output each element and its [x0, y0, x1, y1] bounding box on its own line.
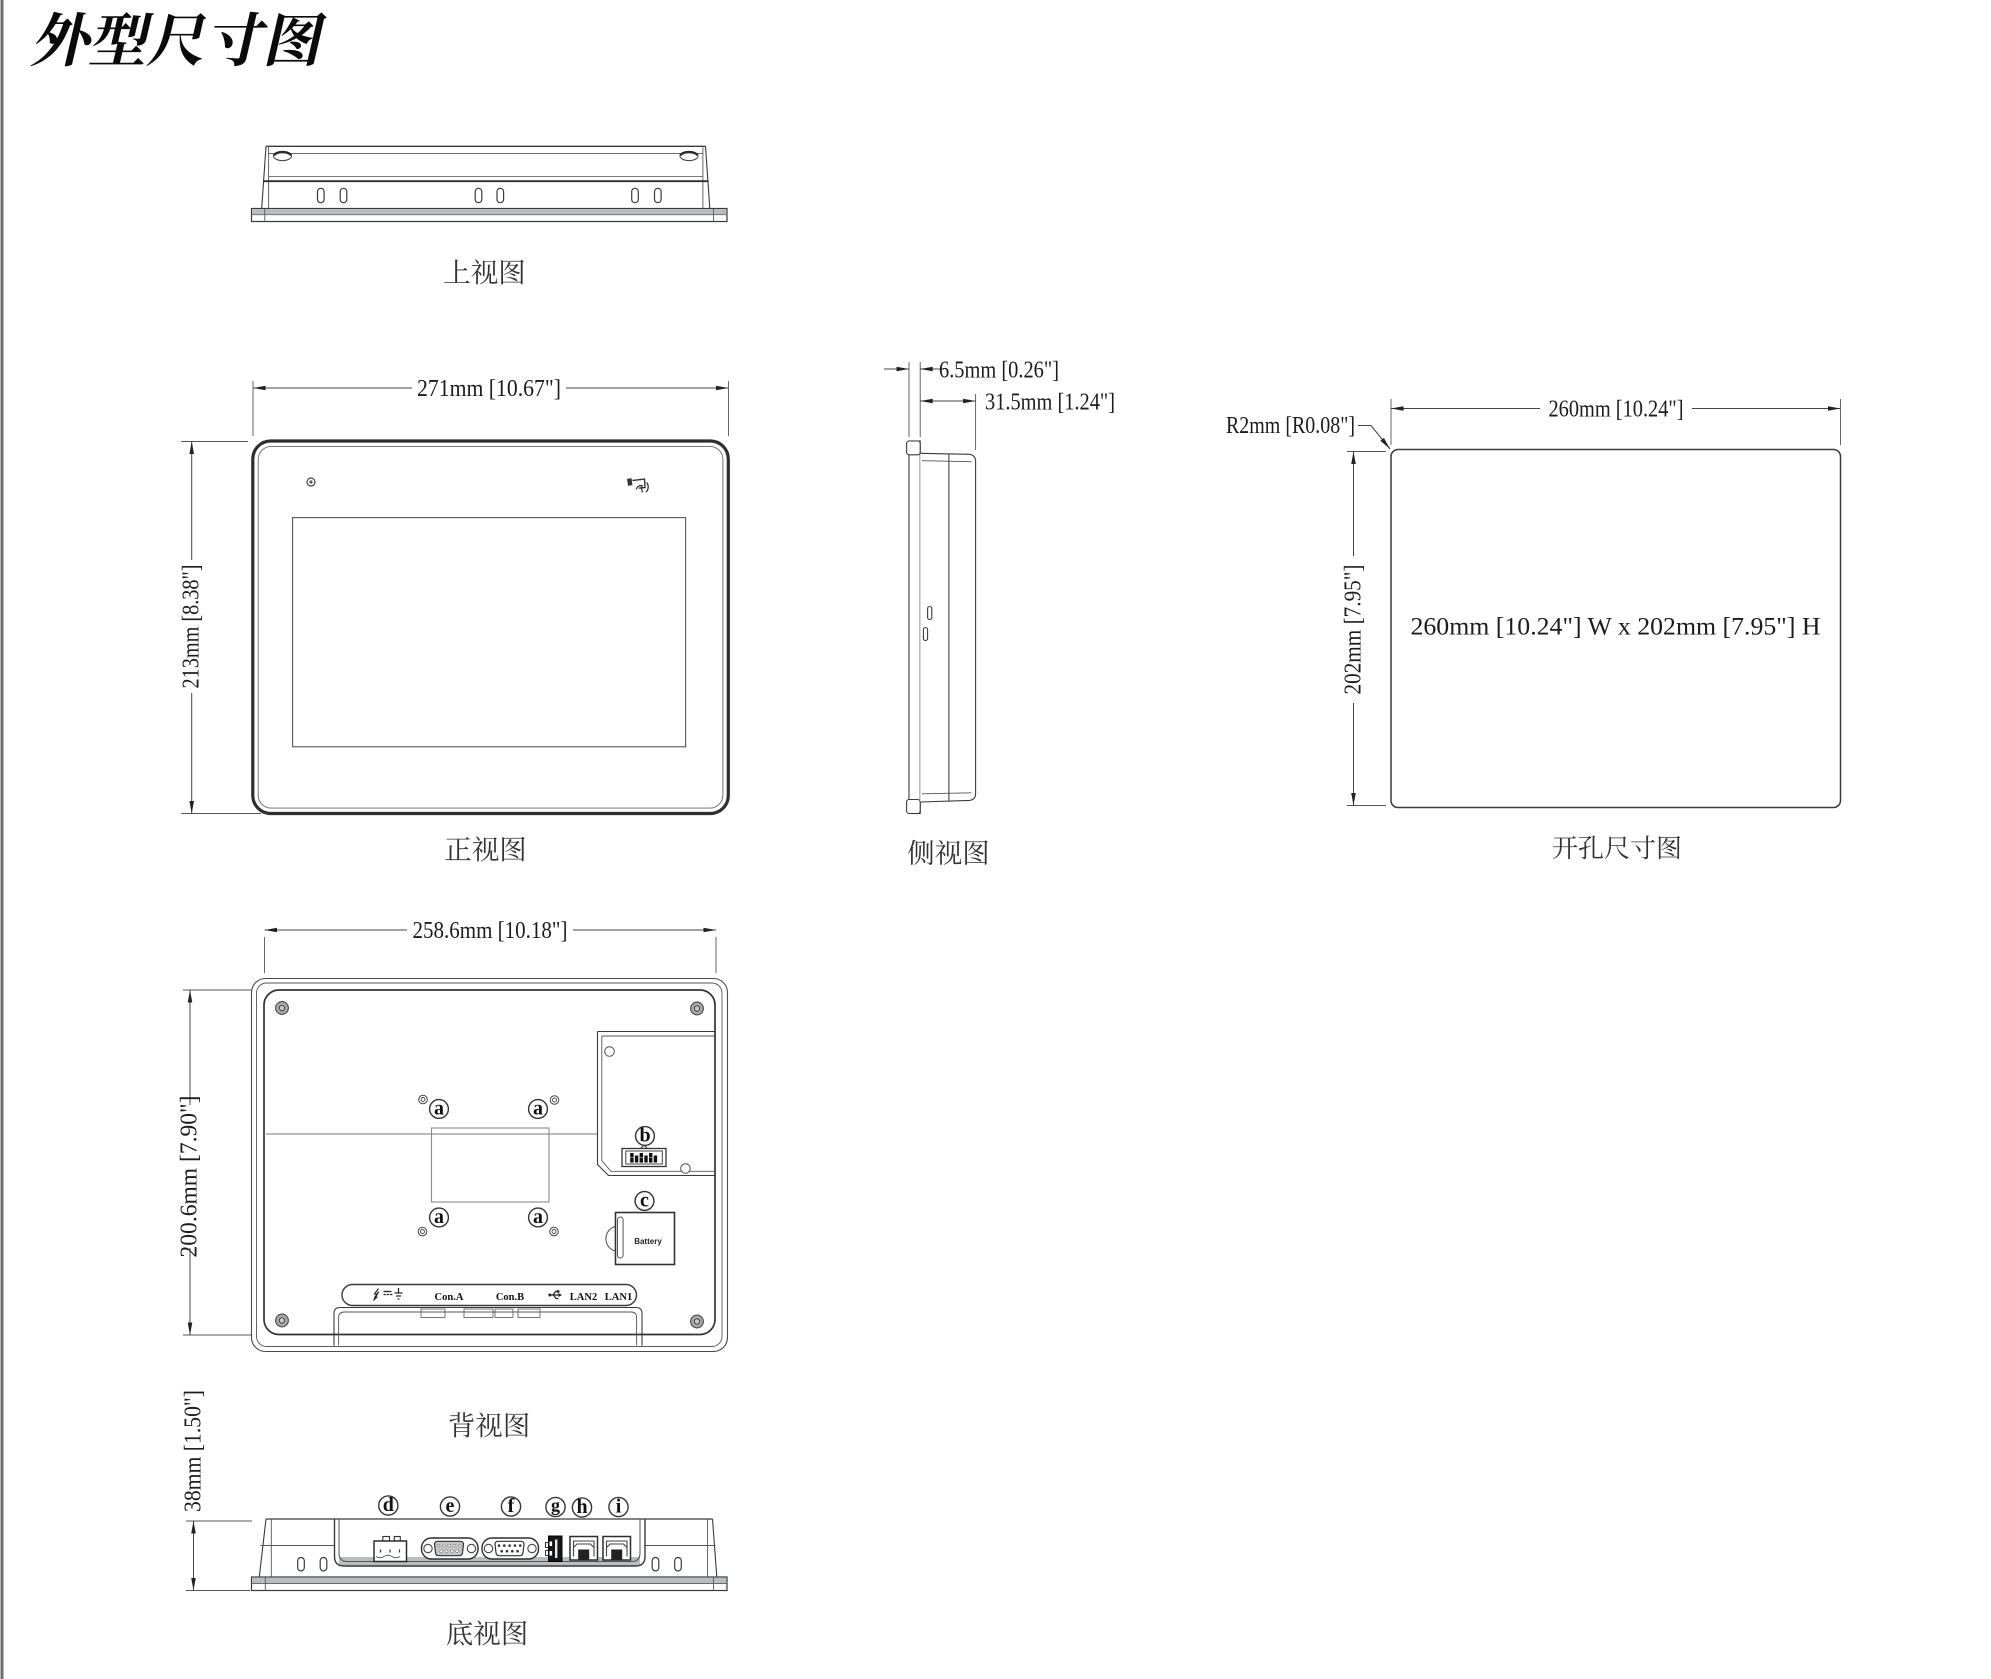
svg-text:260mm [10.24"] W x 202mm [7.95: 260mm [10.24"] W x 202mm [7.95"] H	[1411, 612, 1821, 641]
svg-text:f: f	[508, 1495, 515, 1517]
svg-text:31.5mm [1.24"]: 31.5mm [1.24"]	[985, 390, 1115, 416]
svg-text:38mm [1.50"]: 38mm [1.50"]	[181, 1390, 207, 1512]
svg-text:6.5mm [0.26"]: 6.5mm [0.26"]	[939, 358, 1059, 384]
svg-text:202mm [7.95"]: 202mm [7.95"]	[1341, 565, 1367, 695]
svg-text:260mm [10.24"]: 260mm [10.24"]	[1549, 397, 1684, 423]
svg-text:a: a	[533, 1206, 543, 1228]
svg-text:LAN2: LAN2	[570, 1292, 597, 1303]
svg-text:h: h	[576, 1496, 587, 1518]
svg-text:R2mm [R0.08"]: R2mm [R0.08"]	[1226, 413, 1355, 439]
svg-text:d: d	[383, 1494, 394, 1516]
svg-text:Con.B: Con.B	[496, 1292, 524, 1303]
svg-text:Battery: Battery	[634, 1237, 662, 1246]
svg-text:258.6mm [10.18"]: 258.6mm [10.18"]	[413, 918, 568, 944]
svg-text:LAN1: LAN1	[605, 1292, 632, 1303]
svg-text:c: c	[640, 1190, 649, 1212]
svg-text:Con.A: Con.A	[435, 1292, 464, 1303]
svg-text:b: b	[639, 1125, 650, 1147]
svg-text:a: a	[434, 1098, 444, 1120]
svg-text:e: e	[446, 1495, 455, 1517]
svg-text:i: i	[616, 1496, 622, 1518]
svg-text:271mm [10.67"]: 271mm [10.67"]	[417, 376, 561, 402]
svg-text:213mm [8.38"]: 213mm [8.38"]	[179, 565, 205, 689]
svg-text:200.6mm [7.90"]: 200.6mm [7.90"]	[177, 1096, 203, 1258]
svg-text:a: a	[533, 1098, 543, 1120]
svg-text:g: g	[551, 1495, 560, 1515]
svg-text:a: a	[434, 1206, 444, 1228]
